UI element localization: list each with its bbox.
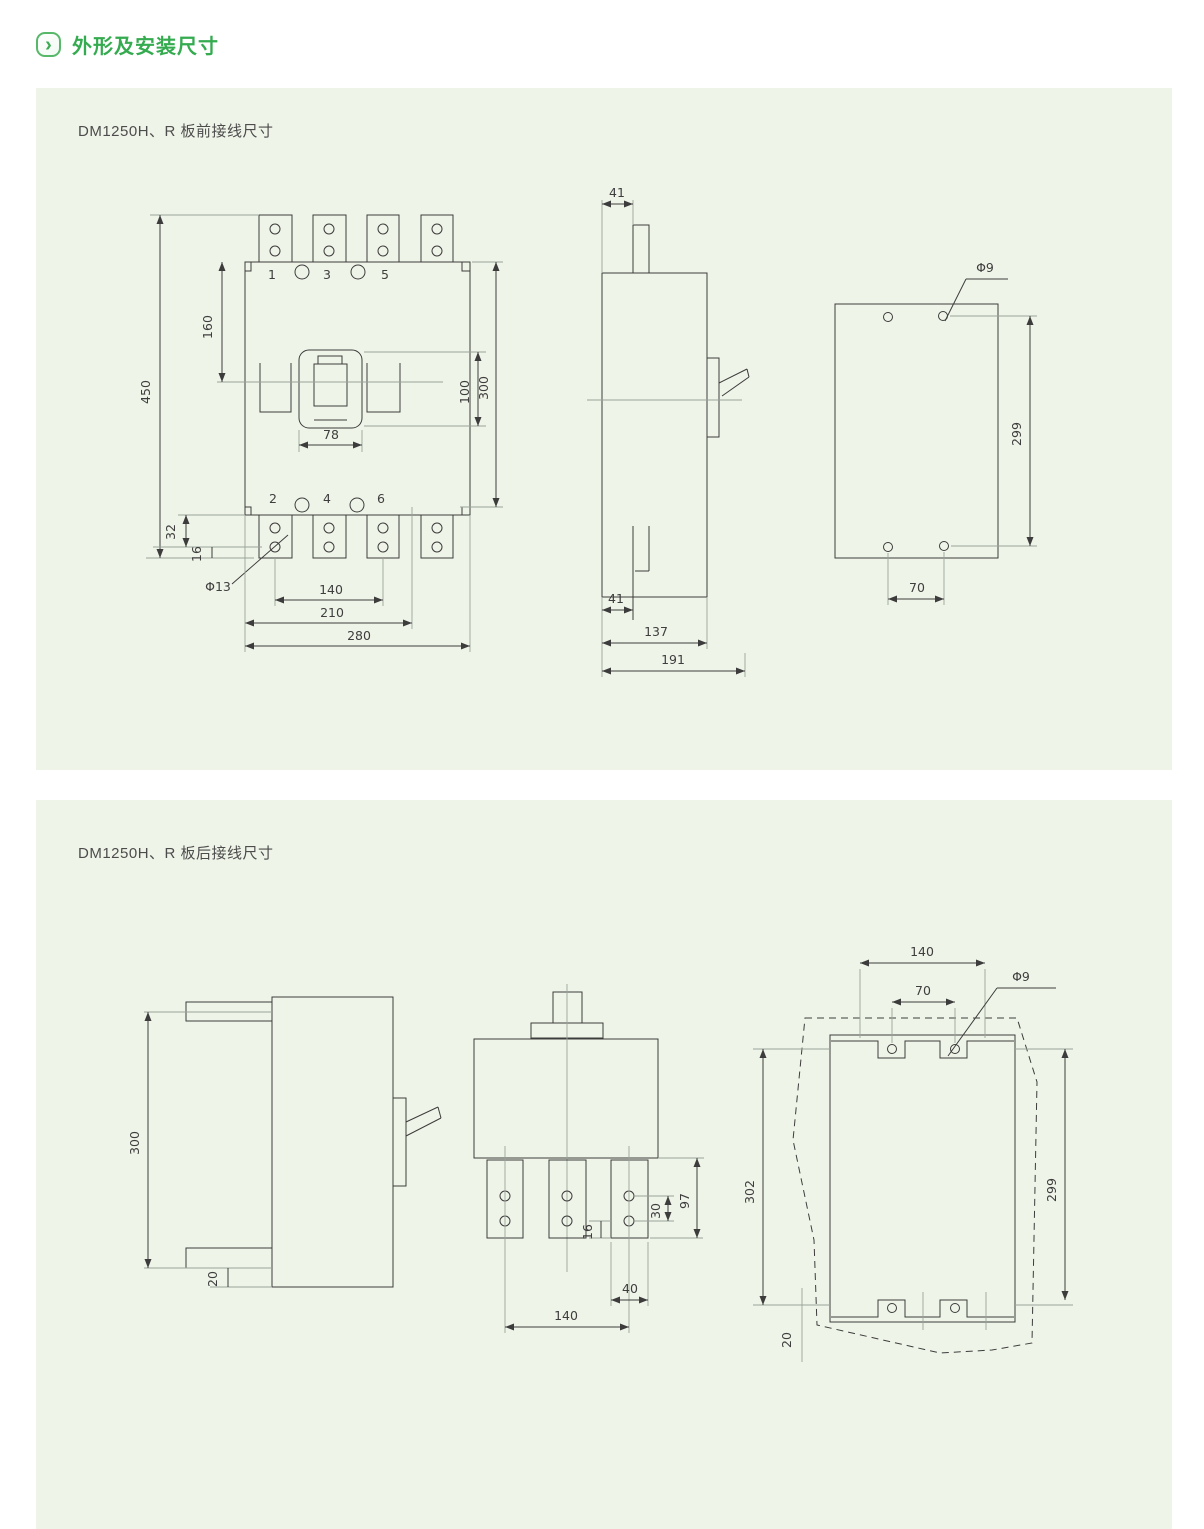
dim-40: 40 bbox=[622, 1281, 638, 1296]
rear-stud-bottom bbox=[186, 1248, 272, 1268]
rear-stud-top bbox=[186, 1002, 272, 1021]
dim-140: 140 bbox=[554, 1308, 578, 1323]
terminal-label: 3 bbox=[323, 267, 331, 282]
dim-41-bottom: 41 bbox=[608, 591, 624, 606]
breaker-side-outline bbox=[272, 997, 393, 1287]
dim-78: 78 bbox=[323, 427, 339, 442]
rear-plate-outline bbox=[830, 1035, 1015, 1322]
rear-view: 30 97 16 40 140 bbox=[474, 984, 704, 1333]
terminal-label: 5 bbox=[381, 267, 389, 282]
dim-300: 300 bbox=[127, 1131, 142, 1155]
rear-side-view: 300 20 bbox=[127, 997, 441, 1287]
section-title: 外形及安装尺寸 bbox=[72, 30, 219, 59]
dim-hole-13: Φ13 bbox=[205, 579, 231, 594]
dim-140: 140 bbox=[319, 582, 343, 597]
terminal-label: 4 bbox=[323, 491, 331, 506]
dim-20: 20 bbox=[779, 1332, 794, 1348]
front-wiring-drawing: 1 3 5 2 4 6 450 160 bbox=[36, 88, 1172, 770]
terminal-label: 6 bbox=[377, 491, 385, 506]
dim-299: 299 bbox=[1009, 422, 1024, 446]
dim-41-top: 41 bbox=[609, 185, 625, 200]
dim-16: 16 bbox=[189, 546, 204, 562]
terminal-label: 1 bbox=[268, 267, 276, 282]
dim-97: 97 bbox=[677, 1193, 692, 1209]
section-header: › 外形及安装尺寸 bbox=[36, 30, 219, 59]
front-wiring-panel: DM1250H、R 板前接线尺寸 bbox=[36, 88, 1172, 770]
dim-450: 450 bbox=[138, 380, 153, 404]
dim-210: 210 bbox=[320, 605, 344, 620]
dim-160: 160 bbox=[200, 315, 215, 339]
breaker-body-outline bbox=[245, 262, 470, 515]
toggle-handle bbox=[314, 364, 347, 406]
dim-137: 137 bbox=[644, 624, 668, 639]
dim-70: 70 bbox=[909, 580, 925, 595]
rear-mounting-view: 302 299 140 70 Φ9 20 bbox=[742, 944, 1073, 1362]
catalog-page: › 外形及安装尺寸 DM1250H、R 板前接线尺寸 bbox=[0, 0, 1204, 1529]
breaker-side-outline bbox=[602, 273, 707, 597]
mounting-plate-view: Φ9 299 70 bbox=[835, 260, 1037, 605]
rear-wiring-panel: DM1250H、R 板后接线尺寸 300 20 bbox=[36, 800, 1172, 1529]
dim-16: 16 bbox=[580, 1224, 595, 1240]
dim-70: 70 bbox=[915, 983, 931, 998]
dim-300: 300 bbox=[476, 376, 491, 400]
breaker-rear-outline bbox=[474, 1039, 658, 1158]
dim-20: 20 bbox=[205, 1271, 220, 1287]
dim-100: 100 bbox=[457, 380, 472, 404]
dim-299: 299 bbox=[1044, 1178, 1059, 1202]
dim-191: 191 bbox=[661, 652, 685, 667]
handle-cover bbox=[299, 350, 362, 428]
dim-32: 32 bbox=[163, 524, 178, 540]
dim-hole-9: Φ9 bbox=[976, 260, 994, 275]
terminal-label: 2 bbox=[269, 491, 277, 506]
dim-30: 30 bbox=[648, 1203, 663, 1219]
dim-280: 280 bbox=[347, 628, 371, 643]
side-view: 41 41 137 191 bbox=[587, 185, 749, 677]
dim-302: 302 bbox=[742, 1180, 757, 1204]
front-view: 1 3 5 2 4 6 450 160 bbox=[138, 215, 503, 652]
mounting-plate-outline bbox=[835, 304, 998, 558]
dim-hole-9: Φ9 bbox=[1012, 969, 1030, 984]
rear-wiring-drawing: 300 20 bbox=[36, 800, 1172, 1529]
dim-140: 140 bbox=[910, 944, 934, 959]
chevron-badge-icon: › bbox=[36, 32, 61, 57]
